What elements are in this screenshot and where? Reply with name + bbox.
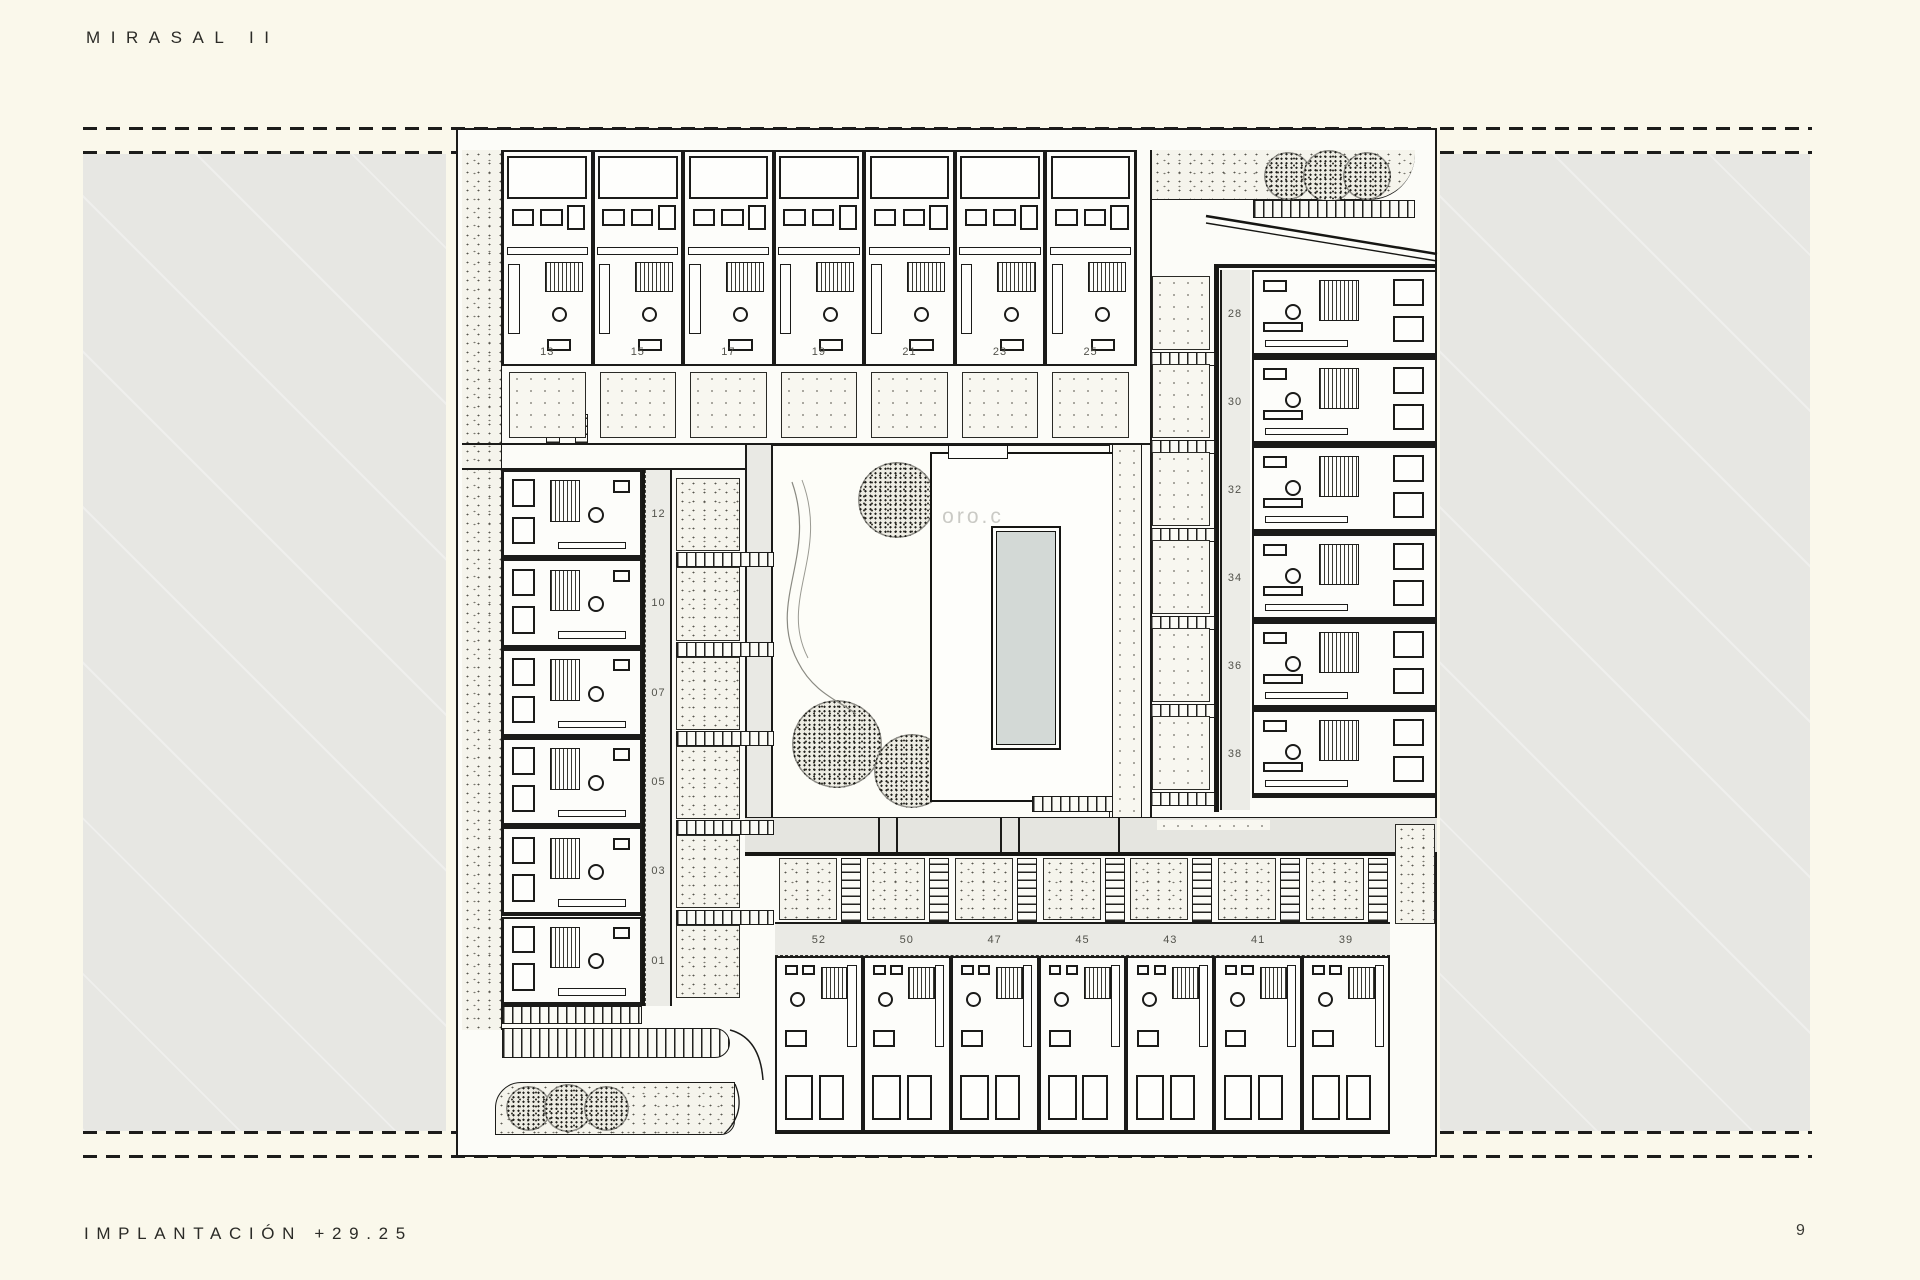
furniture	[726, 262, 764, 292]
unit-plan-top	[502, 150, 593, 366]
furniture	[1225, 1030, 1247, 1047]
unit-plan-right	[1252, 534, 1437, 622]
furniture	[1393, 668, 1424, 695]
furniture	[1049, 1030, 1071, 1047]
unit-plan-bottom	[1302, 956, 1390, 1132]
furniture	[558, 721, 626, 728]
furniture	[1285, 480, 1301, 496]
furniture	[552, 307, 567, 322]
furniture	[1263, 762, 1303, 772]
pool-water	[996, 531, 1056, 745]
patio-steps	[1017, 858, 1037, 922]
unit-plan-bottom	[1039, 956, 1127, 1132]
entry-court	[781, 372, 858, 438]
tree	[792, 700, 882, 788]
furniture	[1285, 656, 1301, 672]
furniture	[1170, 1075, 1195, 1120]
walkway-joint	[878, 817, 880, 853]
unit-label: 07	[645, 649, 672, 738]
furniture	[1265, 340, 1348, 347]
furniture	[512, 606, 535, 633]
furniture	[847, 965, 856, 1048]
entry-court	[1152, 540, 1210, 614]
patio	[676, 835, 740, 908]
furniture	[588, 953, 604, 969]
unit-label: 32	[1220, 446, 1250, 534]
furniture	[512, 569, 535, 596]
furniture	[961, 1030, 983, 1047]
furniture	[613, 927, 631, 939]
furniture	[693, 209, 716, 226]
patio-steps	[1280, 858, 1300, 922]
walkway-joint	[1000, 817, 1002, 853]
furniture	[588, 507, 604, 523]
furniture	[908, 967, 935, 1000]
furniture	[567, 205, 585, 230]
ramp-steps-north-east	[1253, 200, 1415, 218]
furniture	[996, 967, 1023, 1000]
furniture	[689, 264, 700, 334]
entry-court	[1152, 716, 1210, 790]
furniture	[1136, 1075, 1165, 1120]
pool-entry	[948, 445, 1008, 459]
unit-label: 21	[864, 339, 955, 365]
furniture	[959, 247, 1040, 254]
unit-plan-left	[502, 649, 642, 738]
unit-label: 38	[1220, 710, 1250, 798]
furniture	[1263, 410, 1303, 420]
patio-steps	[929, 858, 949, 922]
patio	[676, 478, 740, 551]
furniture	[1393, 580, 1424, 607]
site-plan-sheet: MIRASAL II IMPLANTACIÓN +29.25 9 oro.c	[0, 0, 1920, 1280]
furniture	[819, 1075, 844, 1120]
furniture	[1375, 965, 1384, 1048]
furniture	[1318, 992, 1333, 1007]
furniture	[1049, 965, 1062, 975]
entry-court	[962, 372, 1039, 438]
furniture	[550, 748, 580, 790]
patio	[676, 925, 740, 998]
furniture	[658, 205, 676, 230]
furniture	[1265, 780, 1348, 787]
furniture	[785, 1030, 807, 1047]
pool	[991, 526, 1061, 750]
unit-label: 25	[1045, 339, 1136, 365]
unit-plan-left	[502, 917, 642, 1006]
furniture	[1265, 516, 1348, 523]
furniture	[1241, 965, 1254, 975]
furniture	[960, 156, 1040, 198]
unit-plan-bottom	[1214, 956, 1302, 1132]
entry-court	[1152, 628, 1210, 702]
furniture	[613, 570, 631, 582]
unit-label: 52	[775, 926, 863, 954]
furniture	[1225, 965, 1238, 975]
patio	[676, 657, 740, 730]
furniture	[558, 631, 626, 638]
page-title: MIRASAL II	[86, 28, 280, 48]
courtyard-west-path	[747, 445, 772, 820]
furniture	[1052, 264, 1063, 334]
patio	[955, 858, 1013, 920]
furniture	[873, 1030, 895, 1047]
furniture	[812, 209, 835, 226]
furniture	[1230, 992, 1245, 1007]
furniture	[1285, 304, 1301, 320]
furniture	[1319, 632, 1359, 673]
furniture	[512, 926, 535, 953]
tree	[1343, 152, 1391, 200]
furniture	[1084, 967, 1111, 1000]
entry-steps-south-west	[502, 1006, 642, 1024]
furniture	[872, 1075, 901, 1120]
patio	[1306, 858, 1364, 920]
patio-steps	[1105, 858, 1125, 922]
furniture	[1312, 1030, 1334, 1047]
furniture	[890, 965, 903, 975]
furniture	[1287, 965, 1296, 1048]
furniture	[995, 1075, 1020, 1120]
furniture	[512, 517, 535, 544]
entry-court	[509, 372, 586, 438]
furniture	[512, 696, 535, 723]
furniture	[1258, 1075, 1283, 1120]
patio	[1043, 858, 1101, 920]
furniture	[1393, 631, 1424, 658]
parking-row	[502, 1028, 730, 1058]
furniture	[1393, 279, 1424, 306]
unit-label: 43	[1126, 926, 1214, 954]
furniture	[1048, 1075, 1077, 1120]
furniture	[1199, 965, 1208, 1048]
furniture	[631, 209, 654, 226]
furniture	[1319, 544, 1359, 585]
furniture	[588, 864, 604, 880]
walkway-steps	[676, 642, 774, 657]
unit-label: 13	[502, 339, 593, 365]
unit-plan-right	[1252, 446, 1437, 534]
unit-label: 10	[645, 559, 672, 648]
unit-plan-top	[774, 150, 865, 366]
furniture	[1172, 967, 1199, 1000]
furniture	[689, 156, 769, 198]
furniture	[978, 965, 991, 975]
furniture	[823, 307, 838, 322]
furniture	[1137, 1030, 1159, 1047]
furniture	[588, 775, 604, 791]
furniture	[1263, 498, 1303, 508]
patio	[1130, 858, 1188, 920]
furniture	[839, 205, 857, 230]
furniture	[1023, 965, 1032, 1048]
furniture	[550, 838, 580, 880]
unit-label: 34	[1220, 534, 1250, 622]
furniture	[1051, 156, 1131, 198]
entry-court	[1152, 452, 1210, 526]
furniture	[598, 156, 678, 198]
furniture	[965, 209, 988, 226]
furniture	[1137, 965, 1150, 975]
furniture	[1319, 720, 1359, 761]
furniture	[1319, 368, 1359, 409]
unit-label: 30	[1220, 358, 1250, 446]
furniture	[1393, 543, 1424, 570]
furniture	[1393, 756, 1424, 783]
furniture	[778, 247, 859, 254]
patio-steps	[1192, 858, 1212, 922]
furniture	[1263, 586, 1303, 596]
furniture	[907, 1075, 932, 1120]
unit-label: 36	[1220, 622, 1250, 710]
furniture	[1263, 674, 1303, 684]
unit-plan-right	[1252, 358, 1437, 446]
unit-label: 12	[645, 470, 672, 559]
tree	[584, 1086, 629, 1131]
furniture	[1263, 632, 1287, 644]
furniture	[903, 209, 926, 226]
furniture	[1393, 455, 1424, 482]
furniture	[935, 965, 944, 1048]
furniture	[558, 542, 626, 549]
patio	[867, 858, 925, 920]
furniture	[545, 262, 583, 292]
furniture	[1224, 1075, 1253, 1120]
furniture	[512, 837, 535, 864]
furniture	[1050, 247, 1131, 254]
unit-label: 41	[1214, 926, 1302, 954]
watermark: oro.c	[858, 505, 1088, 529]
walkway-steps	[676, 552, 774, 567]
furniture	[748, 205, 766, 230]
furniture	[1111, 965, 1120, 1048]
furniture	[508, 264, 519, 334]
furniture	[613, 748, 631, 760]
parcel-right	[1440, 154, 1810, 1131]
pool-steps	[1032, 796, 1118, 812]
unit-plan-top	[593, 150, 684, 366]
furniture	[1154, 965, 1167, 975]
furniture	[597, 247, 678, 254]
furniture	[929, 205, 947, 230]
furniture	[1312, 1075, 1341, 1120]
furniture	[790, 992, 805, 1007]
walkway-joint	[896, 817, 898, 853]
furniture	[512, 209, 535, 226]
furniture	[1084, 209, 1107, 226]
furniture	[512, 658, 535, 685]
furniture	[785, 1075, 814, 1120]
furniture	[558, 988, 626, 995]
furniture	[512, 874, 535, 901]
furniture	[550, 659, 580, 701]
furniture	[1263, 280, 1287, 292]
furniture	[914, 307, 929, 322]
furniture	[1329, 965, 1342, 975]
patio-steps	[1368, 858, 1388, 922]
furniture	[1393, 404, 1424, 431]
walkway-steps	[676, 820, 774, 835]
unit-plan-right	[1252, 710, 1437, 798]
entry-court	[600, 372, 677, 438]
furniture	[550, 927, 580, 969]
furniture	[507, 156, 587, 198]
furniture	[613, 480, 631, 492]
furniture	[907, 262, 945, 292]
furniture	[1020, 205, 1038, 230]
unit-plan-bottom	[1126, 956, 1214, 1132]
walkway-steps	[676, 910, 774, 925]
furniture	[1285, 568, 1301, 584]
furniture	[613, 659, 631, 671]
furniture	[1393, 316, 1424, 343]
furniture	[613, 838, 631, 850]
drawing-caption: IMPLANTACIÓN +29.25	[84, 1224, 413, 1244]
furniture	[1393, 367, 1424, 394]
unit-label: 17	[683, 339, 774, 365]
unit-plan-left	[502, 827, 642, 916]
south-wall	[745, 852, 1437, 856]
furniture	[1265, 428, 1348, 435]
furniture	[966, 992, 981, 1007]
furniture	[1319, 456, 1359, 497]
unit-label: 23	[955, 339, 1046, 365]
furniture	[821, 967, 848, 1000]
furniture	[602, 209, 625, 226]
entry-court	[1152, 364, 1210, 438]
furniture	[512, 479, 535, 506]
furniture	[869, 247, 950, 254]
patio	[676, 567, 740, 640]
furniture	[1088, 262, 1126, 292]
furniture	[1285, 744, 1301, 760]
furniture	[1004, 307, 1019, 322]
patio-steps	[841, 858, 861, 922]
patio	[1218, 858, 1276, 920]
unit-plan-top	[955, 150, 1046, 366]
unit-label: 01	[645, 917, 672, 1006]
furniture	[1265, 604, 1348, 611]
furniture	[1263, 720, 1287, 732]
furniture	[783, 209, 806, 226]
unit-plan-right	[1252, 622, 1437, 710]
furniture	[733, 307, 748, 322]
furniture	[588, 686, 604, 702]
furniture	[961, 264, 972, 334]
courtyard-east-path	[1112, 445, 1142, 820]
furniture	[1082, 1075, 1107, 1120]
right-column-top-line	[1218, 264, 1437, 268]
patio	[779, 858, 837, 920]
furniture	[802, 965, 815, 975]
furniture	[721, 209, 744, 226]
furniture	[960, 1075, 989, 1120]
furniture	[688, 247, 769, 254]
furniture	[993, 209, 1016, 226]
furniture	[871, 264, 882, 334]
unit-plan-top	[864, 150, 955, 366]
furniture	[1263, 456, 1287, 468]
patio	[676, 746, 740, 819]
furniture	[785, 965, 798, 975]
furniture	[1066, 965, 1079, 975]
furniture	[507, 247, 588, 254]
furniture	[512, 747, 535, 774]
walkway-steps	[676, 731, 774, 746]
unit-label: 19	[774, 339, 865, 365]
unit-label: 45	[1039, 926, 1127, 954]
walkway-joint	[1018, 817, 1020, 853]
unit-label: 15	[593, 339, 684, 365]
unit-label: 47	[951, 926, 1039, 954]
south-walkway	[745, 817, 1437, 853]
furniture	[779, 156, 859, 198]
unit-plan-bottom	[775, 956, 863, 1132]
furniture	[599, 264, 610, 334]
furniture	[816, 262, 854, 292]
furniture	[1319, 280, 1359, 321]
furniture	[997, 262, 1035, 292]
unit-plan-bottom	[951, 956, 1039, 1132]
unit-label: 39	[1302, 926, 1390, 954]
furniture	[1142, 992, 1157, 1007]
unit-label: 05	[645, 738, 672, 827]
unit-plan-left	[502, 470, 642, 559]
furniture	[1346, 1075, 1371, 1120]
furniture	[878, 992, 893, 1007]
furniture	[1263, 544, 1287, 556]
furniture	[1260, 967, 1287, 1000]
furniture	[1285, 392, 1301, 408]
unit-plan-right	[1252, 270, 1437, 358]
unit-plan-left	[502, 738, 642, 827]
walkway-joint	[1118, 817, 1120, 853]
furniture	[550, 480, 580, 522]
furniture	[642, 307, 657, 322]
furniture	[1110, 205, 1128, 230]
furniture	[1312, 965, 1325, 975]
furniture	[558, 810, 626, 817]
furniture	[550, 570, 580, 612]
furniture	[1393, 719, 1424, 746]
unit-plan-left	[502, 559, 642, 648]
walkway-planter	[1157, 820, 1270, 830]
planter-south-east	[1395, 824, 1435, 924]
walkway-steps	[1150, 792, 1216, 806]
furniture	[512, 785, 535, 812]
entry-court	[1152, 276, 1210, 350]
furniture	[1348, 967, 1375, 1000]
furniture	[870, 156, 950, 198]
entry-court	[690, 372, 767, 438]
furniture	[1265, 692, 1348, 699]
furniture	[1393, 492, 1424, 519]
furniture	[874, 209, 897, 226]
unit-label: 50	[863, 926, 951, 954]
page-number: 9	[1796, 1222, 1805, 1240]
furniture	[961, 965, 974, 975]
furniture	[780, 264, 791, 334]
furniture	[558, 899, 626, 906]
unit-label: 03	[645, 827, 672, 916]
unit-plan-bottom	[863, 956, 951, 1132]
furniture	[1054, 992, 1069, 1007]
furniture	[1055, 209, 1078, 226]
unit-plan-top	[1045, 150, 1136, 366]
furniture	[588, 596, 604, 612]
entry-court	[1052, 372, 1129, 438]
entry-court	[871, 372, 948, 438]
